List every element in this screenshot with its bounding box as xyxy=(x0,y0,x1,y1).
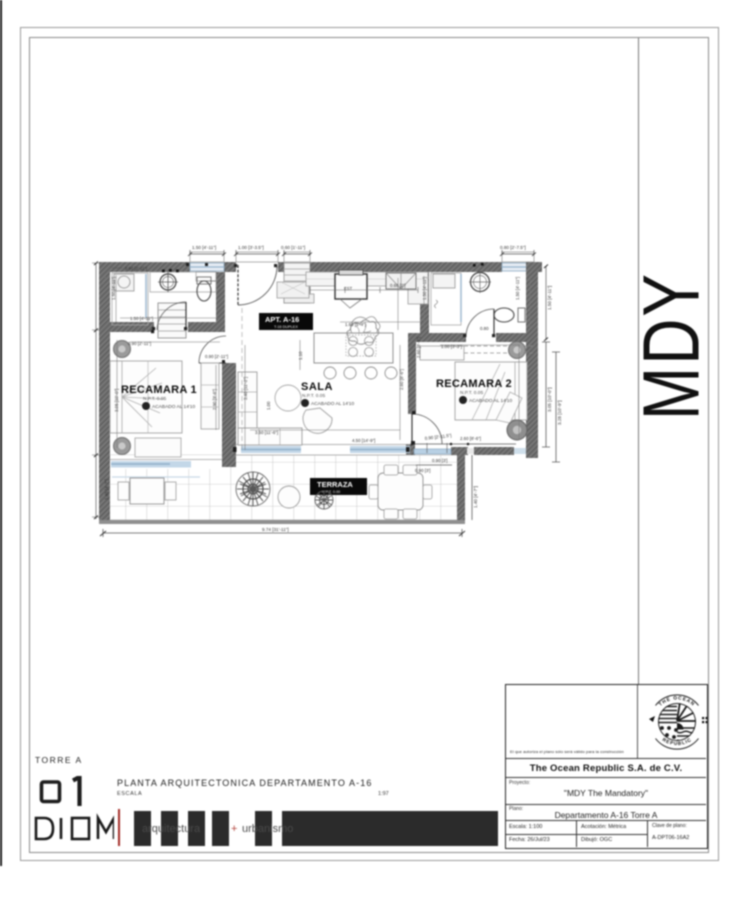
svg-text:0.90 [3']: 0.90 [3'] xyxy=(432,458,448,463)
svg-text:1.50 [4'-11"]: 1.50 [4'-11"] xyxy=(422,277,427,300)
svg-text:3.50 [11'-6"]: 3.50 [11'-6"] xyxy=(255,430,278,435)
svg-text:1.00 [3'-3.5"]: 1.00 [3'-3.5"] xyxy=(238,245,264,250)
svg-text:ACABADO AL 14'10: ACABADO AL 14'10 xyxy=(311,401,354,407)
svg-text:2.60 [8'-6"]: 2.60 [8'-6"] xyxy=(416,337,421,358)
svg-text:3.40 [11'-2"]: 3.40 [11'-2"] xyxy=(243,377,248,400)
svg-text:1.00: 1.00 xyxy=(266,401,271,410)
svg-text:N.P.T. 0.05: N.P.T. 0.05 xyxy=(143,396,166,402)
svg-text:1.63 [5'-4"]: 1.63 [5'-4"] xyxy=(345,322,366,327)
svg-text:0.90 [2'-11"]: 0.90 [2'-11"] xyxy=(125,266,147,271)
svg-text:TERRAZA: TERRAZA xyxy=(317,480,353,489)
svg-text:2.60 [8'-6"]: 2.60 [8'-6"] xyxy=(460,436,481,441)
svg-text:+: + xyxy=(231,823,237,835)
svg-text:1.10: 1.10 xyxy=(298,351,303,360)
svg-text:SALA: SALA xyxy=(301,381,333,393)
svg-text:0.90 [2'-11.5"]: 0.90 [2'-11.5"] xyxy=(425,433,452,441)
svg-text:0.90 [2'-11"]: 0.90 [2'-11"] xyxy=(205,354,228,359)
svg-text:3.05 [10'-0"]: 3.05 [10'-0"] xyxy=(114,389,119,412)
svg-text:0.90 [3']: 0.90 [3'] xyxy=(415,468,431,473)
svg-text:RECAMARA 2: RECAMARA 2 xyxy=(436,378,512,390)
svg-text:1.50 [4'-11"]: 1.50 [4'-11"] xyxy=(547,286,552,310)
svg-text:9.74 [31'-11"]: 9.74 [31'-11"] xyxy=(262,527,289,532)
svg-text:N.P.T. 0.05: N.P.T. 0.05 xyxy=(460,390,483,396)
svg-text:ACABADO AL 14'10: ACABADO AL 14'10 xyxy=(469,398,512,404)
svg-text:3.05 [10'-0"]: 3.05 [10'-0"] xyxy=(547,388,552,412)
svg-text:T-16 DUPLEX: T-16 DUPLEX xyxy=(274,325,298,329)
svg-text:N.P.T. 0.05: N.P.T. 0.05 xyxy=(302,393,325,399)
svg-text:1.50 [4'-11"]: 1.50 [4'-11"] xyxy=(515,277,520,300)
svg-text:1.40 [4'-7"]: 1.40 [4'-7"] xyxy=(104,479,109,500)
svg-text:0.60 [1'-11"]: 0.60 [1'-11"] xyxy=(281,245,305,250)
svg-text:APT. A-16: APT. A-16 xyxy=(265,315,299,324)
svg-text:urbanismo: urbanismo xyxy=(242,823,293,835)
svg-text:0.80: 0.80 xyxy=(480,326,489,331)
svg-text:1.50 [4'-11"]: 1.50 [4'-11"] xyxy=(111,277,116,300)
svg-text:1.50 [4'-11"]: 1.50 [4'-11"] xyxy=(192,245,216,250)
svg-text:4.50 [14'-9"]: 4.50 [14'-9"] xyxy=(352,438,375,443)
svg-text:RECAMARA 1: RECAMARA 1 xyxy=(121,384,197,396)
svg-text:1.40 [4'-7"]: 1.40 [4'-7"] xyxy=(473,486,478,508)
svg-text:0.80 [2'-7.5"]: 0.80 [2'-7.5"] xyxy=(500,245,526,250)
svg-text:ACABADO AL 14'10: ACABADO AL 14'10 xyxy=(152,404,195,410)
svg-text:arquitectura: arquitectura xyxy=(142,823,201,835)
svg-text:3.28 [10'-9"]: 3.28 [10'-9"] xyxy=(557,401,562,425)
svg-text:1.50 [4'-11"]: 1.50 [4'-11"] xyxy=(130,316,153,321)
